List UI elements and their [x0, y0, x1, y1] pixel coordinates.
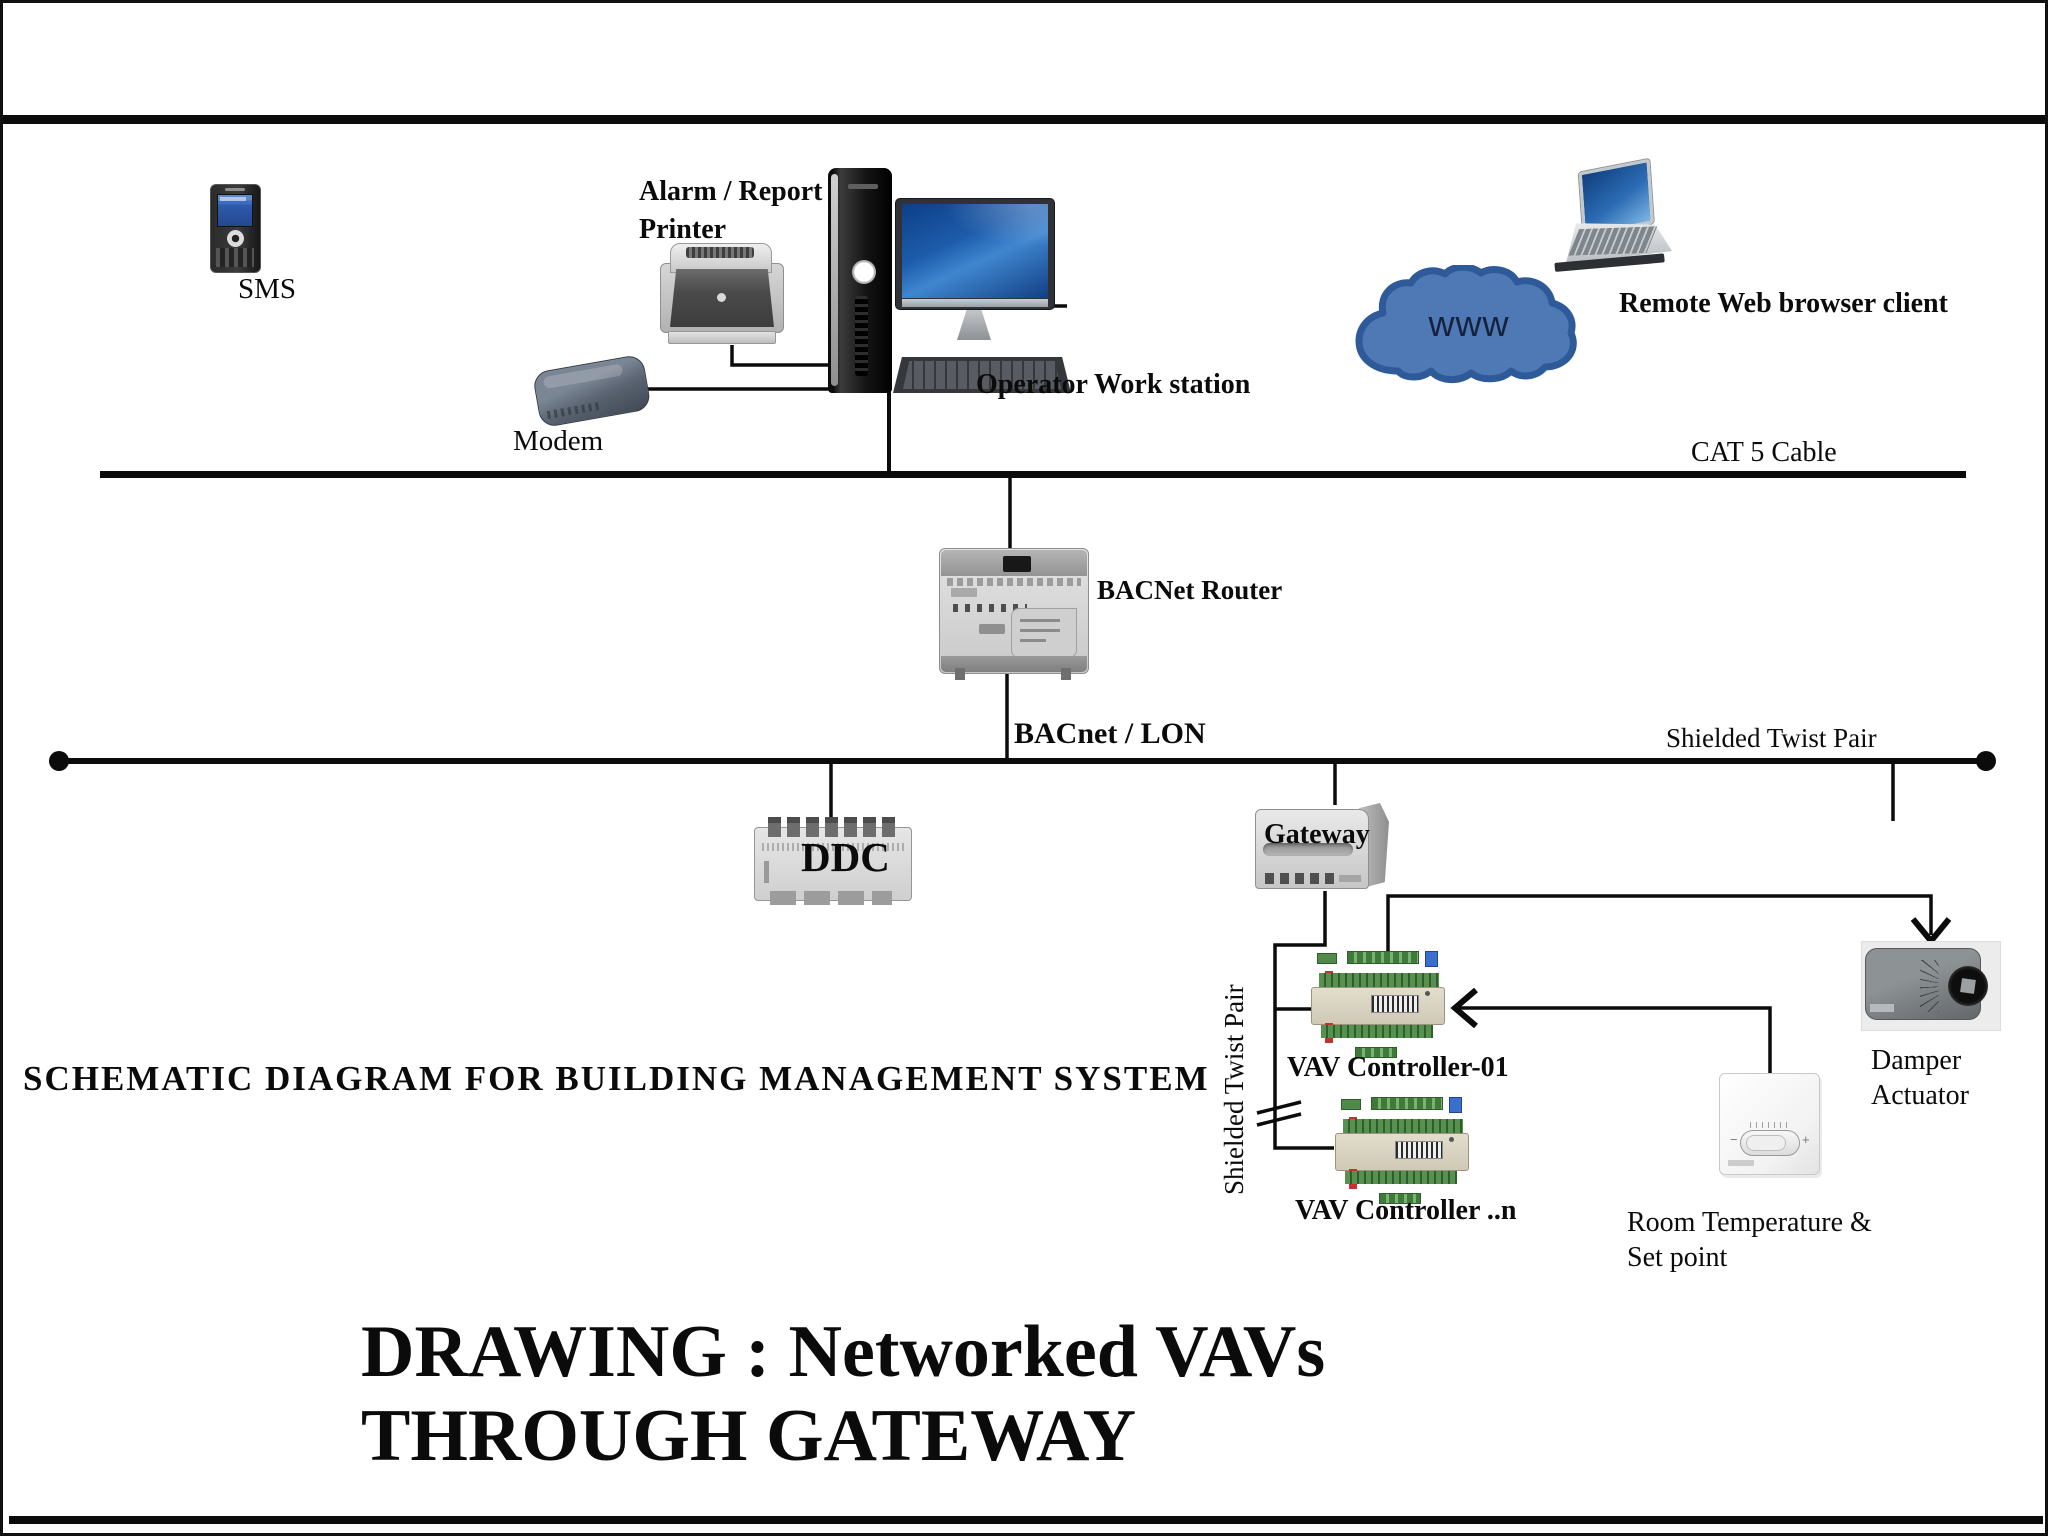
- damper-actuator-label: Damper Actuator: [1871, 1043, 1969, 1113]
- room-temp-label: Room Temperature & Set point: [1627, 1205, 1872, 1275]
- vav-led: [1449, 1137, 1454, 1142]
- printer-icon: [660, 243, 784, 347]
- bus-right-terminator-dot: [1976, 751, 1996, 771]
- monitor-icon: [895, 198, 1055, 316]
- drawing-title-line1: DRAWING : Networked VAVs: [361, 1311, 1325, 1395]
- vav-top-terminal-row: [1319, 973, 1439, 987]
- bacnet-router-icon: [939, 548, 1089, 674]
- vav-barcode-label: [1371, 995, 1419, 1013]
- damper-shaft-hole: [1960, 978, 1976, 994]
- schematic-page: + − SMS Alarm / Report Printer Modem Ope…: [0, 0, 2048, 1536]
- vav-bottom-terminal-row: [1321, 1025, 1433, 1038]
- damper-actuator-icon: [1861, 941, 2001, 1031]
- router-tag: [951, 588, 977, 597]
- ddc-label: DDC: [801, 833, 890, 881]
- router-connector: [1003, 556, 1031, 572]
- vav-controller-n-icon: [1333, 1097, 1471, 1207]
- www-label: www: [1399, 303, 1539, 345]
- room-thermostat-icon: + −: [1719, 1073, 1820, 1175]
- vav01-label: VAV Controller-01: [1287, 1052, 1509, 1084]
- modem-label: Modem: [513, 425, 603, 458]
- laptop-keys: [1568, 226, 1657, 255]
- vavn-label: VAV Controller ..n: [1295, 1195, 1516, 1227]
- printer-paper-tray: [668, 331, 776, 344]
- phone-screen: [217, 194, 253, 227]
- printer-label-line2: Printer: [639, 211, 823, 249]
- drawing-title-line2: THROUGH GATEWAY: [361, 1395, 1325, 1479]
- gateway-label: Gateway: [1264, 819, 1370, 851]
- router-foot-left: [955, 668, 965, 680]
- vav-bottom-terminal-row: [1345, 1171, 1457, 1184]
- workstation-label: Operator Work station: [976, 369, 1250, 401]
- vav-top-terminal-row: [1343, 1119, 1463, 1133]
- thermostat-plus: +: [1802, 1132, 1810, 1147]
- tower-edge-strip: [831, 174, 838, 386]
- room-temp-label-line1: Room Temperature &: [1627, 1205, 1872, 1240]
- bottom-rule: [9, 1516, 2043, 1524]
- phone-nav-button: [227, 230, 244, 247]
- thermostat-minus: −: [1730, 1132, 1738, 1147]
- vav-led: [1425, 991, 1430, 996]
- router-slots: [947, 578, 1081, 586]
- vav-controller-01-icon: [1309, 951, 1447, 1061]
- thermostat-ticks: [1750, 1122, 1790, 1128]
- drawing-title: DRAWING : Networked VAVs THROUGH GATEWAY: [361, 1311, 1325, 1478]
- remote-client-label: Remote Web browser client: [1619, 288, 1948, 320]
- thermostat-lens: [1746, 1135, 1786, 1151]
- router-button: [979, 624, 1005, 634]
- bus-left-terminator-dot: [49, 751, 69, 771]
- gateway-connector-2: [1339, 875, 1361, 882]
- vav-blue-connector: [1425, 951, 1438, 967]
- vav-terminal-small: [1341, 1099, 1361, 1110]
- laptop-icon: [1549, 164, 1677, 272]
- damper-label-line1: Damper: [1871, 1043, 1969, 1078]
- sms-phone-icon: [210, 184, 261, 273]
- damper-label-line2: Actuator: [1871, 1078, 1969, 1113]
- vav-terminal-long: [1347, 951, 1419, 964]
- thermostat-brand: [1728, 1160, 1754, 1166]
- room-temp-label-line2: Set point: [1627, 1240, 1872, 1275]
- bacnet-router-label: BACNet Router: [1097, 575, 1282, 606]
- router-foot-right: [1061, 668, 1071, 680]
- phone-speaker: [225, 188, 245, 191]
- sms-label: SMS: [225, 273, 309, 306]
- shielded-twist-pair-vertical-label: Shielded Twist Pair: [1219, 969, 1250, 1195]
- monitor-screen: [902, 204, 1048, 298]
- schematic-heading: SCHEMATIC DIAGRAM FOR BUILDING MANAGEMEN…: [23, 1059, 1210, 1099]
- cat5-cable-label: CAT 5 Cable: [1691, 437, 1837, 469]
- shielded-twist-pair-right-label: Shielded Twist Pair: [1666, 723, 1877, 754]
- bacnet-lon-label: BACnet / LON: [1014, 717, 1206, 751]
- tower-power-button: [852, 260, 876, 284]
- pc-tower-icon: [828, 168, 892, 393]
- gateway-connectors: [1265, 873, 1335, 884]
- monitor-chin: [902, 299, 1048, 307]
- tower-drive-slot: [848, 184, 878, 189]
- printer-label-line1: Alarm / Report: [639, 173, 823, 211]
- monitor-stand: [957, 310, 991, 340]
- cable-break-mark-1: [1257, 1102, 1301, 1113]
- vav-blue-connector: [1449, 1097, 1462, 1113]
- cat5-cable-line: [100, 471, 1966, 478]
- vav-barcode-label: [1395, 1141, 1443, 1159]
- printer-logo: [717, 293, 726, 302]
- printer-label: Alarm / Report Printer: [639, 173, 823, 249]
- vav-terminal-small: [1317, 953, 1337, 964]
- vav01-to-damper-wire: [1388, 896, 1931, 959]
- tower-vent: [855, 296, 868, 376]
- damper-label-tag: [1870, 1004, 1894, 1012]
- vav-terminal-long: [1371, 1097, 1443, 1110]
- router-label-panel: [1011, 608, 1077, 658]
- top-rule: [3, 115, 2048, 124]
- ddc-bottom-connectors: [770, 891, 892, 905]
- phone-keypad: [216, 248, 254, 267]
- cable-break-mark-2: [1257, 1114, 1301, 1125]
- ddc-terminal-caps: [768, 817, 898, 823]
- ddc-side-slot: [764, 861, 769, 883]
